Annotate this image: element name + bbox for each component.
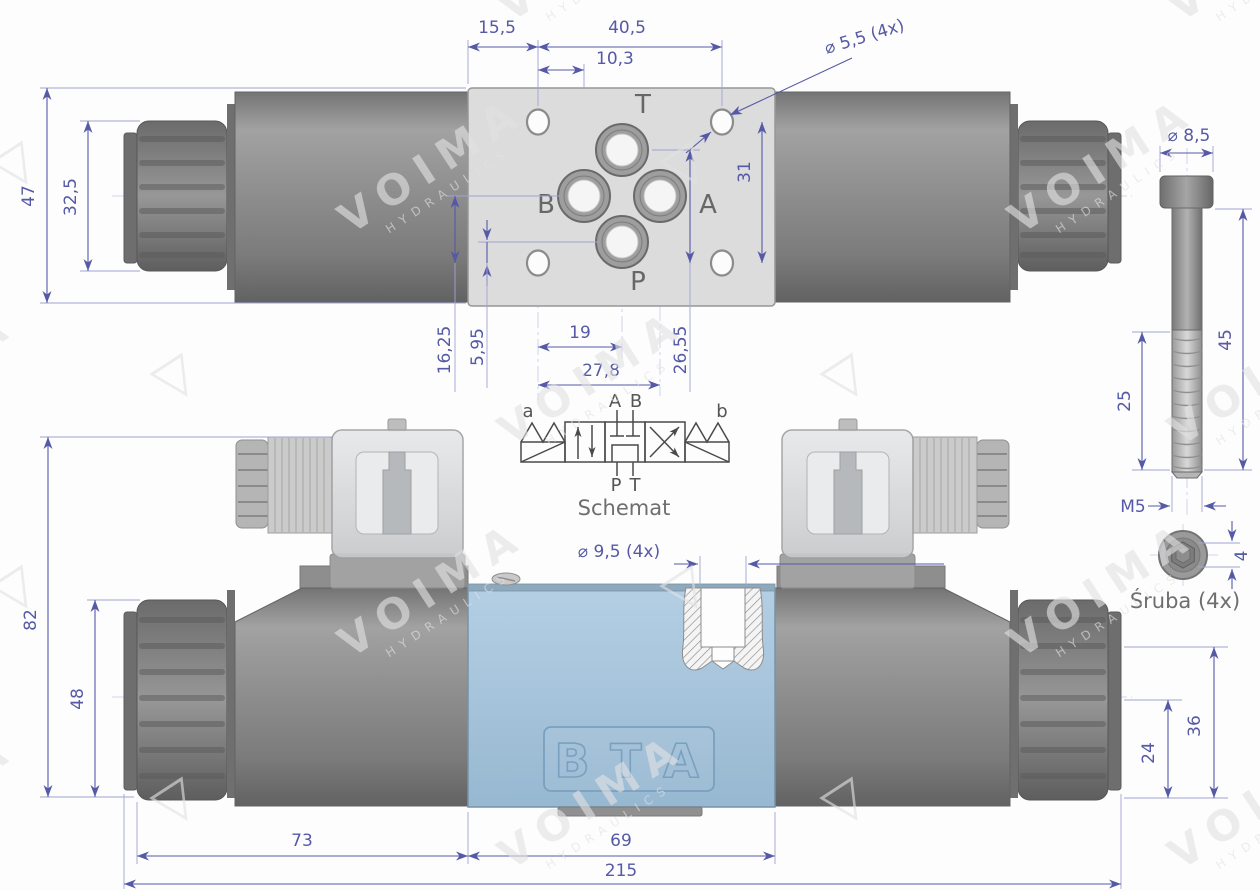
top-left-end-disc <box>124 133 137 263</box>
dim-hole-to-a-col-27-8: 27,8 <box>538 361 660 385</box>
body-letter-t: T <box>610 734 642 788</box>
dim-label: ⌀ 5,5 (4x) <box>822 16 906 59</box>
schematic-left-position-box <box>565 422 605 462</box>
schematic-port-t-label: T <box>629 475 642 496</box>
valve-body-foot <box>558 807 702 816</box>
hydraulic-schematic: a b A B P T Schemat <box>521 391 729 520</box>
dim-label: 24 <box>1139 742 1159 764</box>
port-t-label: T <box>634 90 651 120</box>
schematic-solenoid-a-label: a <box>522 401 533 422</box>
dim-hole-span-40-5: 40,5 <box>538 18 722 47</box>
bleed-screw <box>492 573 520 585</box>
dim-label: 32,5 <box>61 178 81 216</box>
dim-label: M5 <box>1120 497 1145 517</box>
schematic-port-a-label: A <box>609 391 622 412</box>
dim-label: 40,5 <box>608 18 646 38</box>
dim-label: 48 <box>68 688 88 710</box>
dim-right-upper-36: 36 <box>1124 647 1228 798</box>
schematic-port-p-label: P <box>611 475 622 496</box>
dim-label: 10,3 <box>596 49 634 69</box>
dim-label: 27,8 <box>582 361 620 381</box>
front-right-flange <box>1010 590 1018 798</box>
valve-technical-drawing: T B A P 15,5 40,5 10,3 ⌀ 5,5 (4x) 47 32,… <box>0 0 1260 891</box>
dim-label: 4 <box>1232 551 1252 562</box>
dim-label: 16,25 <box>435 326 455 375</box>
front-view: B T A <box>124 419 1121 816</box>
front-left-end-disc <box>124 612 137 790</box>
dim-label: 36 <box>1185 715 1205 737</box>
dim-right-lower-24: 24 <box>1124 700 1182 798</box>
connector-base <box>780 554 915 588</box>
schematic-port-b-label: B <box>630 391 642 412</box>
dim-head-dia: ⌀ 8,5 <box>1160 126 1213 172</box>
dim-hole-to-t-col-19: 19 <box>538 323 622 347</box>
connector-base <box>330 554 465 588</box>
top-view: T B A P <box>124 88 1121 306</box>
dim-label: ⌀ 9,5 (4x) <box>578 542 660 562</box>
dim-label: 19 <box>569 323 591 343</box>
dim-label: 82 <box>21 609 41 631</box>
dim-thread-length-25: 25 <box>1115 332 1170 470</box>
screw-socket-end-view <box>1159 531 1207 579</box>
screw-thread <box>1172 330 1202 472</box>
body-letter-b: B <box>554 734 589 788</box>
dim-label: 15,5 <box>478 18 516 38</box>
dim-body-length-69: 69 <box>468 812 775 864</box>
front-right-end-disc <box>1108 612 1121 790</box>
dim-label: 31 <box>735 161 755 183</box>
dim-label: 26,55 <box>671 326 691 375</box>
screw-detail: Śruba (4x) <box>1130 176 1240 613</box>
top-right-flange <box>1010 104 1018 290</box>
dim-label: ⌀ 8,5 <box>1168 126 1211 146</box>
body-letter-panel: B T A <box>544 727 714 791</box>
solenoid-a-symbol <box>521 423 565 462</box>
port-b-label: B <box>537 190 555 220</box>
screw-caption: Śruba (4x) <box>1130 588 1240 613</box>
top-right-solenoid-tube <box>775 92 1010 302</box>
schematic-caption: Schemat <box>578 496 671 520</box>
technical-drawing-page: T B A P 15,5 40,5 10,3 ⌀ 5,5 (4x) 47 32,… <box>0 0 1260 891</box>
cable-gland-thread <box>268 437 332 533</box>
dim-thread-size-m5: M5 <box>1120 476 1226 517</box>
port-a-label: A <box>699 190 717 220</box>
dim-label: 25 <box>1115 390 1135 412</box>
port-p <box>596 216 648 268</box>
front-left-flange <box>227 590 235 798</box>
solenoid-b-symbol <box>685 423 729 462</box>
dim-solenoid-length-73: 73 <box>137 802 468 864</box>
dim-label: 47 <box>19 185 39 207</box>
screw-tip-chamfer <box>1172 472 1202 478</box>
port-t <box>596 124 648 176</box>
top-right-nut <box>1018 121 1108 271</box>
cable-gland-thread <box>913 437 977 533</box>
port-p-label: P <box>630 267 646 297</box>
right-din-connector <box>780 419 1009 588</box>
dim-shank-length-45: 45 <box>1204 209 1252 470</box>
top-left-nut <box>137 121 227 271</box>
port-a <box>634 170 686 222</box>
top-left-flange <box>227 104 235 290</box>
dim-label: 73 <box>291 831 313 851</box>
screw-head <box>1160 176 1213 208</box>
dim-label: 45 <box>1216 329 1236 351</box>
connector-top-screw <box>839 419 857 431</box>
dim-label: 5,95 <box>468 328 488 366</box>
port-b <box>558 170 610 222</box>
top-right-end-disc <box>1108 133 1121 263</box>
screw-shank <box>1172 208 1202 330</box>
top-left-solenoid-tube <box>235 92 468 302</box>
dim-hole-to-port-10-3: 10,3 <box>538 49 634 88</box>
front-right-solenoid-body <box>775 588 1010 806</box>
schematic-center-position-box <box>605 422 645 462</box>
left-din-connector <box>236 419 465 588</box>
front-left-solenoid-body <box>235 588 468 806</box>
body-letter-a: A <box>663 734 699 788</box>
dim-label: 215 <box>605 861 637 881</box>
dim-label: 69 <box>610 831 632 851</box>
schematic-solenoid-b-label: b <box>716 401 727 422</box>
counterbore-section <box>682 588 763 670</box>
connector-top-screw <box>388 419 406 431</box>
